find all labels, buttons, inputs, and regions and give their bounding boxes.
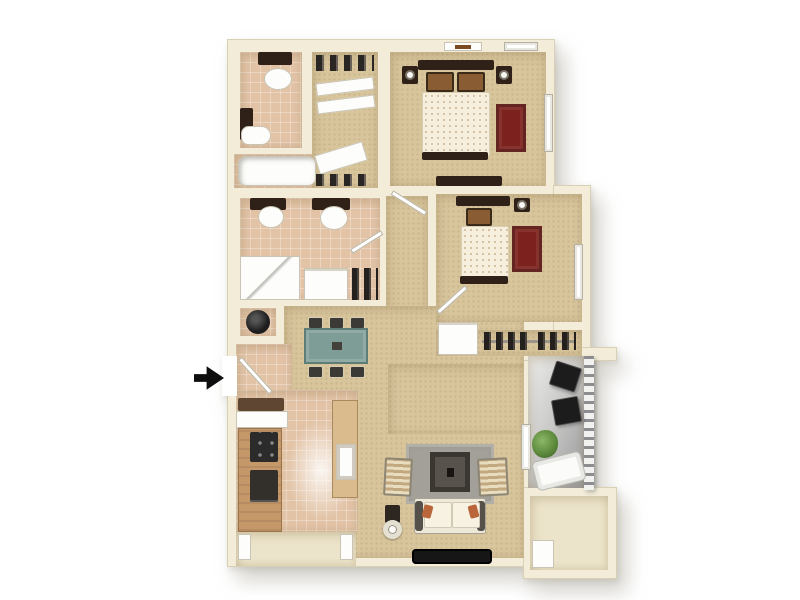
dining-chair-5 xyxy=(329,366,344,378)
dining-table xyxy=(304,328,368,364)
lamp-left xyxy=(405,70,415,80)
hanging-clothes-2 xyxy=(538,332,576,350)
kitchen-counter-nook xyxy=(236,411,288,428)
sofa xyxy=(414,498,486,534)
wall-art-detail xyxy=(455,45,471,49)
floor-hall-lower xyxy=(388,364,524,434)
hall-closet-items xyxy=(352,268,378,300)
armchair-left xyxy=(383,457,413,496)
coffee-table xyxy=(430,452,470,492)
bed1-headboard xyxy=(418,60,494,70)
bathroom1-toilet xyxy=(241,126,271,145)
linen-shelf xyxy=(304,268,348,300)
porch-pillar-left xyxy=(238,534,251,560)
floorplan-image xyxy=(0,0,800,600)
floor-entry-porch xyxy=(236,532,356,566)
patio-chair-2 xyxy=(551,396,582,426)
shower xyxy=(240,256,300,300)
bedroom1-top-window xyxy=(504,42,538,51)
closet-shelf-items xyxy=(316,55,374,71)
bedroom2-lamp xyxy=(517,200,527,210)
bed1-comforter xyxy=(422,92,490,156)
bedroom2-linen-cabinet xyxy=(438,322,478,355)
refrigerator xyxy=(250,470,278,502)
bedroom2-window xyxy=(574,244,583,300)
apartment-floorplan xyxy=(0,0,800,600)
water-heater xyxy=(246,310,270,334)
bathtub xyxy=(238,156,316,186)
bed1-pillow-right xyxy=(457,72,485,92)
entry-opening xyxy=(222,356,237,396)
bedroom1-right-window xyxy=(544,94,553,152)
lamp-right xyxy=(499,70,509,80)
bedroom2-red-rug xyxy=(512,226,542,272)
coffee-table-item xyxy=(447,468,454,477)
closet-lower-shelf-items xyxy=(316,174,372,186)
bed1-pillow-left xyxy=(426,72,454,92)
bed1-footboard xyxy=(422,152,488,160)
table-centerpiece xyxy=(332,342,342,350)
bathroom1-sink xyxy=(264,68,292,90)
kitchen-nook-shelf xyxy=(238,398,284,411)
bed2-pillow xyxy=(466,208,492,226)
bedroom1-dresser xyxy=(436,176,502,186)
dining-chair-4 xyxy=(308,366,323,378)
plant xyxy=(532,430,558,458)
bedroom1-red-rug xyxy=(496,104,526,152)
side-table-ring xyxy=(383,520,402,539)
bed2-headboard xyxy=(456,196,510,206)
bathroom2-sink xyxy=(320,206,348,230)
bed2-comforter xyxy=(461,226,509,280)
balcony-railing xyxy=(584,356,594,490)
hanging-clothes-1 xyxy=(484,332,532,350)
porch-pillar-right xyxy=(340,534,353,560)
kitchen-sink xyxy=(336,444,356,480)
dining-chair-6 xyxy=(350,366,365,378)
mirror-cabinet xyxy=(258,52,292,65)
armchair-right xyxy=(477,457,509,497)
storage-box xyxy=(532,540,554,568)
tv xyxy=(412,549,492,564)
bathroom2-toilet xyxy=(258,206,284,228)
balcony-sliding-door xyxy=(521,424,531,470)
floor-bedroom-2 xyxy=(436,194,582,322)
stove xyxy=(250,432,278,462)
wall-art xyxy=(444,42,482,51)
bed2-footboard xyxy=(460,276,508,284)
